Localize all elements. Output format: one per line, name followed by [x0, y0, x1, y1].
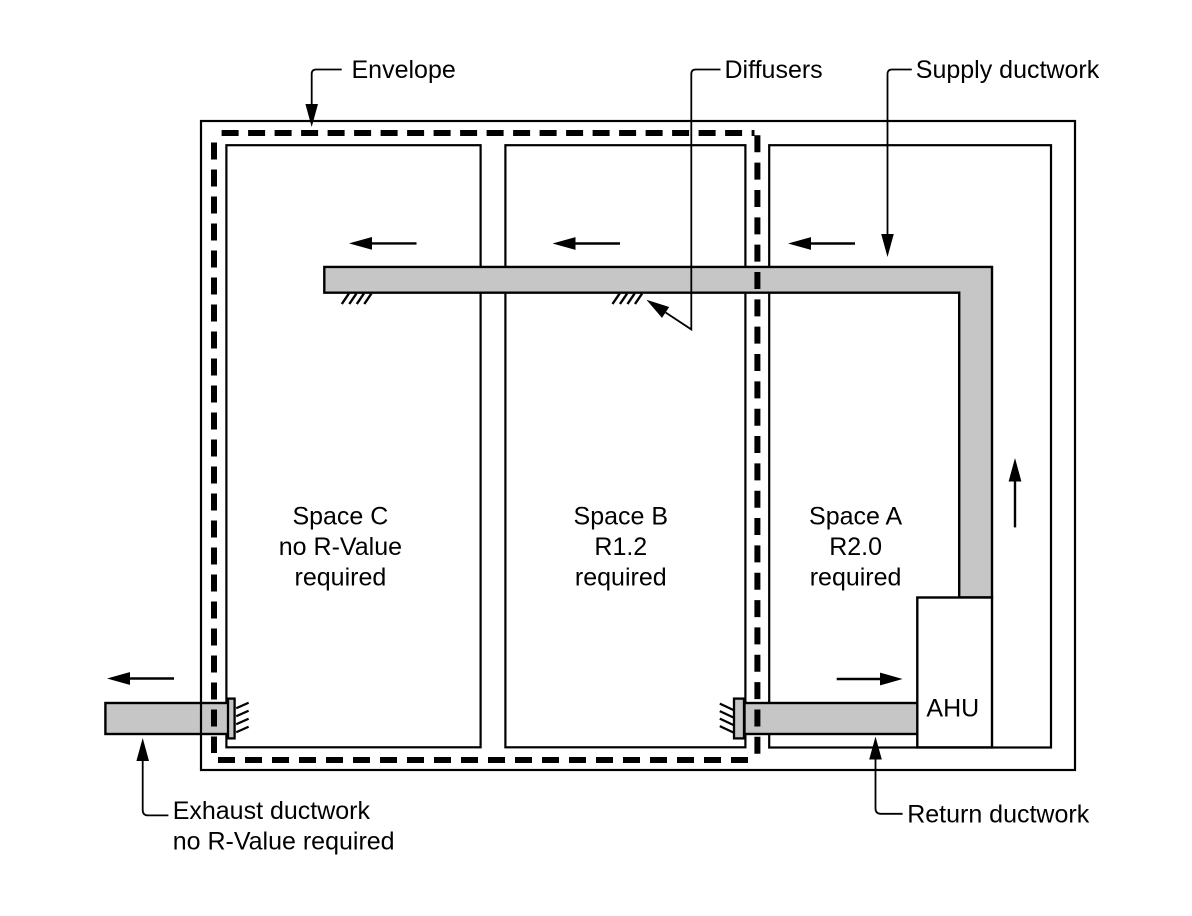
svg-text:Space B: Space B	[574, 503, 669, 531]
svg-text:required: required	[295, 564, 387, 592]
svg-text:Diffusers: Diffusers	[725, 56, 823, 84]
svg-text:Space A: Space A	[809, 503, 902, 531]
svg-text:Exhaust ductwork: Exhaust ductwork	[173, 797, 371, 825]
svg-text:Supply ductwork: Supply ductwork	[916, 56, 1100, 84]
svg-text:Envelope: Envelope	[352, 56, 456, 84]
svg-text:R1.2: R1.2	[594, 533, 647, 561]
svg-text:no R-Value: no R-Value	[279, 533, 402, 561]
svg-text:Return ductwork: Return ductwork	[907, 801, 1090, 829]
svg-text:no R-Value required: no R-Value required	[173, 828, 395, 856]
svg-text:required: required	[575, 564, 667, 592]
svg-text:required: required	[810, 564, 902, 592]
svg-text:AHU: AHU	[926, 694, 979, 722]
svg-text:Space C: Space C	[292, 503, 388, 531]
svg-text:R2.0: R2.0	[829, 533, 882, 561]
